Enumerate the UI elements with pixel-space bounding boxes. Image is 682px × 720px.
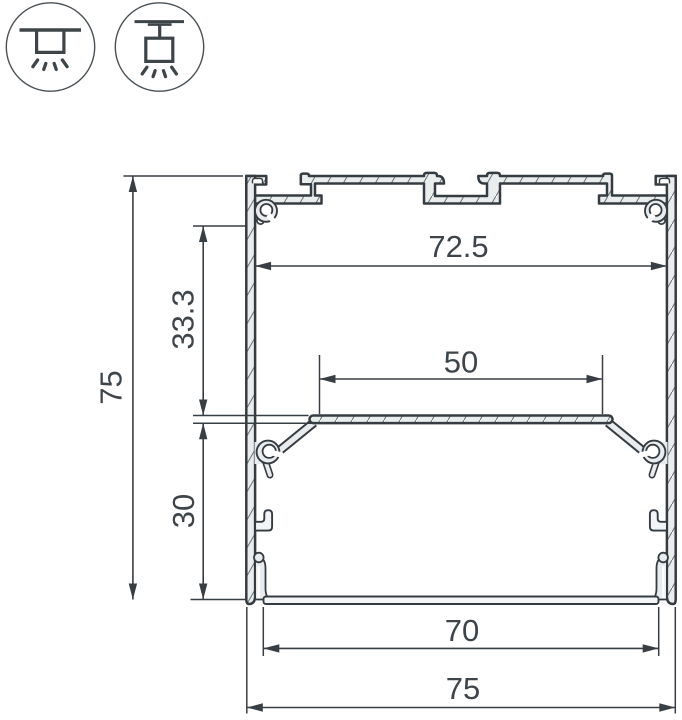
svg-text:50: 50 xyxy=(444,345,478,380)
svg-text:30: 30 xyxy=(166,494,201,528)
svg-text:75: 75 xyxy=(446,671,480,706)
svg-text:72.5: 72.5 xyxy=(428,229,488,264)
svg-text:70: 70 xyxy=(445,613,479,648)
svg-text:75: 75 xyxy=(94,370,129,404)
svg-text:33.3: 33.3 xyxy=(166,289,201,349)
